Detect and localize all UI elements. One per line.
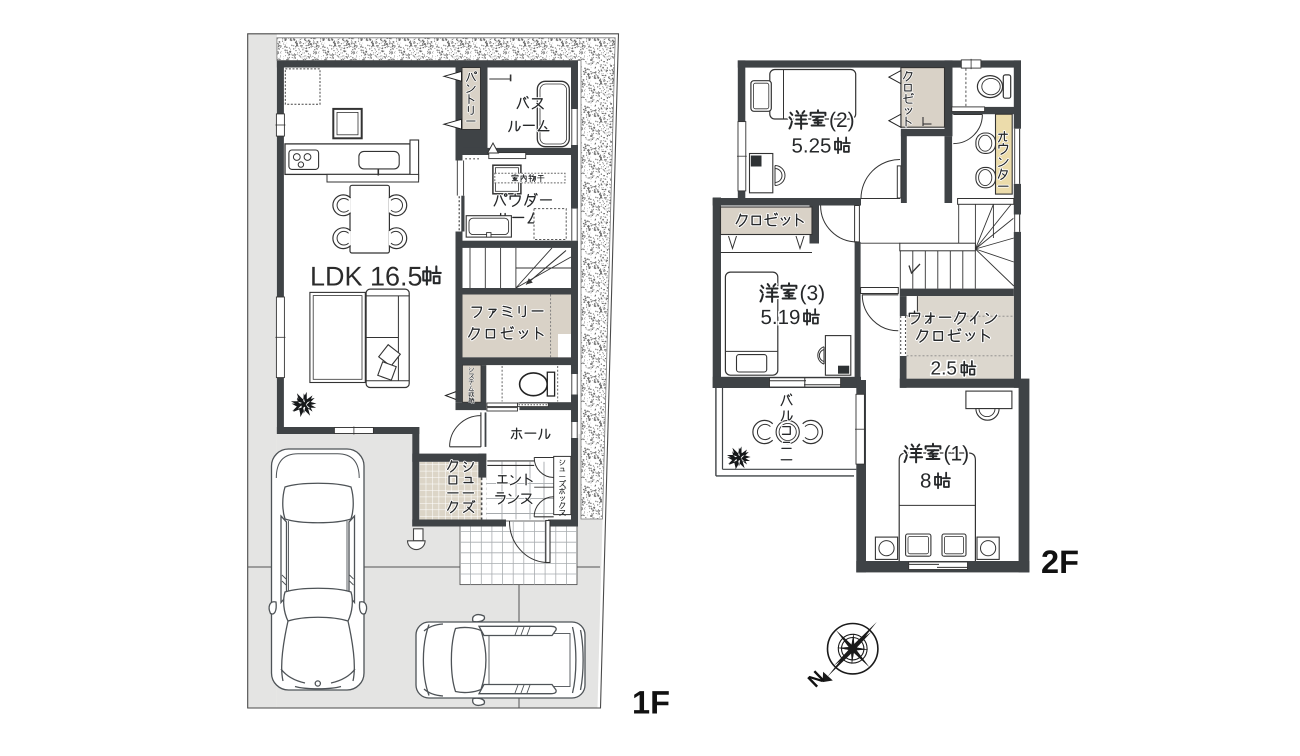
svg-text:2.5: 2.5 (931, 359, 957, 380)
svg-text:LDK 16.5: LDK 16.5 (310, 262, 423, 292)
svg-text:1F: 1F (632, 685, 670, 721)
svg-text:8: 8 (920, 470, 931, 493)
svg-text:5.25: 5.25 (792, 134, 832, 157)
svg-text:(3): (3) (800, 282, 826, 305)
svg-text:2F: 2F (1041, 544, 1079, 580)
svg-text:5.19: 5.19 (761, 306, 801, 329)
svg-text:(1): (1) (944, 443, 970, 466)
svg-text:(2): (2) (829, 109, 855, 132)
